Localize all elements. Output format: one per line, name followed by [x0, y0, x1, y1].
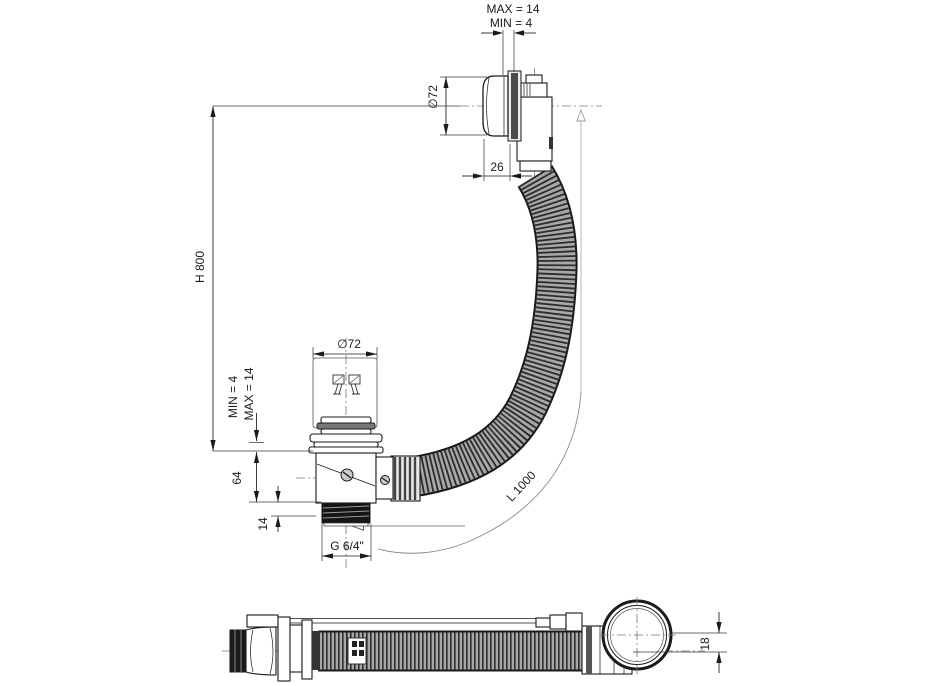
elbow-detail	[549, 137, 553, 149]
dim-floor-min-label: MIN = 4	[226, 376, 240, 419]
open-arrow-up	[577, 110, 585, 121]
overflow-control-knob	[483, 71, 553, 171]
hose-nut	[391, 456, 420, 501]
cone-step	[247, 615, 278, 627]
dim-knob-depth-label: 26	[490, 160, 504, 174]
dim-panel-max-label: MAX = 14	[486, 2, 539, 16]
dim-thread-size-label: G 6/4"	[330, 539, 364, 553]
flexible-overflow-hose	[412, 176, 557, 477]
dim-knob-offset-label: 18	[698, 637, 712, 651]
cable-tube-top	[526, 75, 542, 83]
dim-thread-length-label: 14	[256, 517, 270, 531]
drain-tail-plan	[230, 615, 320, 681]
dim-floor-max-label: MAX = 14	[242, 367, 256, 420]
flange-plate	[278, 617, 290, 681]
plug-clip	[333, 375, 360, 394]
seal-ring	[312, 631, 320, 670]
locknut-plate	[302, 620, 312, 679]
flange-seal	[511, 73, 518, 139]
cable-tube	[521, 83, 547, 97]
dim-height-label: H 800	[193, 251, 207, 283]
plan-view: 18	[222, 597, 727, 681]
waste-drain-assembly	[309, 358, 393, 526]
elbow-body	[517, 97, 552, 161]
dim-plug-diameter-label: ∅72	[337, 337, 361, 351]
elbow-collar	[520, 161, 551, 171]
technical-drawing: MAX = 14 MIN = 4 ∅72 26	[0, 0, 928, 686]
threaded-tail	[322, 503, 370, 526]
technical-drawing-page: MAX = 14 MIN = 4 ∅72 26	[0, 0, 928, 686]
dim-panel-min-label: MIN = 4	[490, 16, 533, 30]
plug-disc-stack	[309, 417, 383, 453]
hose-clip	[348, 638, 366, 664]
nipple-small	[536, 618, 550, 627]
dim-knob-diameter-label: ∅72	[426, 85, 440, 109]
dim-body-height-label: 64	[230, 471, 244, 485]
nipple-mid	[550, 615, 566, 629]
flange-cylinder	[290, 625, 302, 672]
nipple-large	[566, 613, 582, 631]
side-elevation-view: MAX = 14 MIN = 4 ∅72 26	[193, 2, 602, 568]
